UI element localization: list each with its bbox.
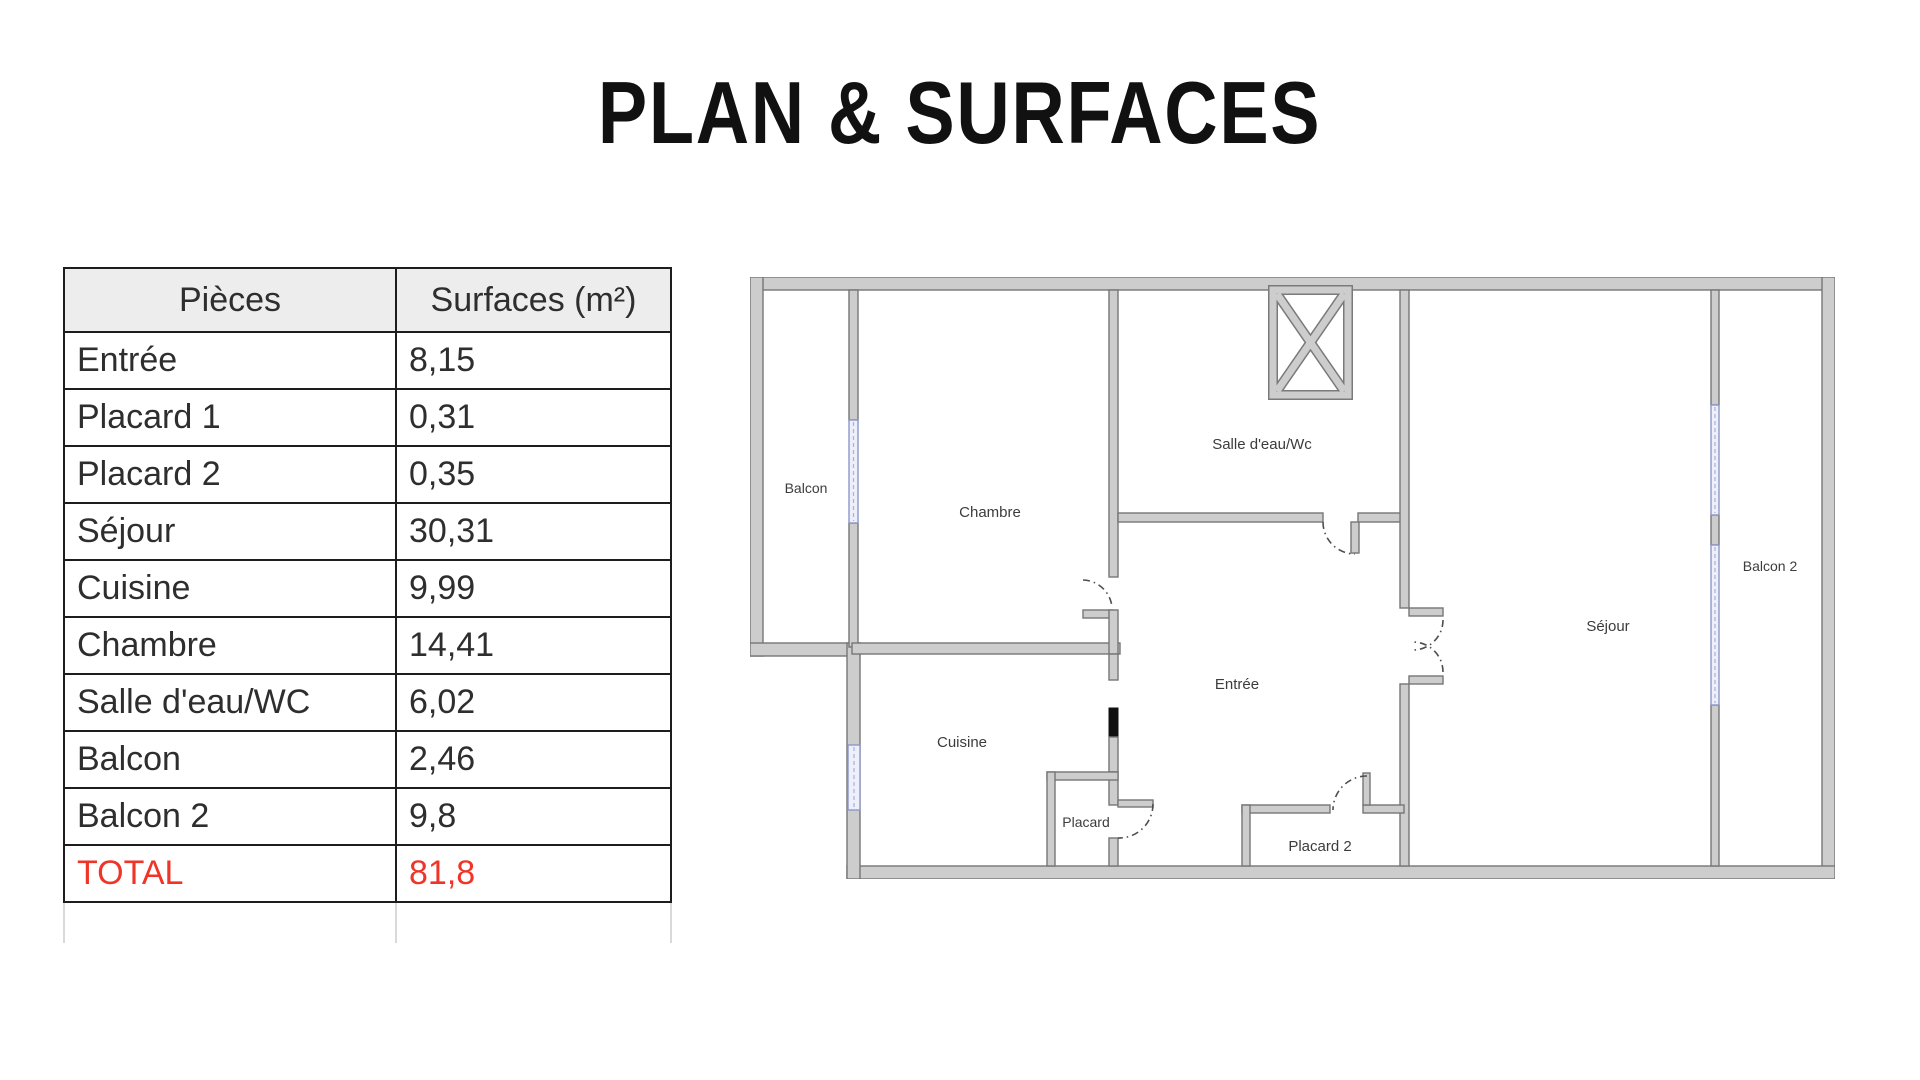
- table-row: Placard 2 0,35: [64, 446, 671, 503]
- cell-piece: Balcon 2: [64, 788, 396, 845]
- window-cuisine: [848, 745, 860, 810]
- table-row: Cuisine 9,99: [64, 560, 671, 617]
- page-title: PLAN & SURFACES: [0, 69, 1920, 157]
- door-arc-placard2: [1333, 776, 1367, 810]
- table-header-row: Pièces Surfaces (m²): [64, 268, 671, 332]
- label-balcon2: Balcon 2: [1743, 558, 1798, 574]
- table-row: Balcon 2 9,8: [64, 788, 671, 845]
- cell-piece: Placard 2: [64, 446, 396, 503]
- table-row: Chambre 14,41: [64, 617, 671, 674]
- cell-surface: 2,46: [396, 731, 671, 788]
- cell-piece: Entrée: [64, 332, 396, 389]
- cell-total-value: 81,8: [396, 845, 671, 902]
- label-sejour: Séjour: [1586, 618, 1629, 635]
- door-arc-chambre: [1083, 580, 1112, 607]
- label-cuisine: Cuisine: [937, 734, 987, 751]
- window-balcon-chambre: [849, 420, 858, 523]
- table-row: Entrée 8,15: [64, 332, 671, 389]
- table-row: Balcon 2,46: [64, 731, 671, 788]
- table-row: Salle d'eau/WC 6,02: [64, 674, 671, 731]
- window-sejour-upper: [1711, 405, 1719, 515]
- shaft-icon: [1273, 290, 1348, 395]
- table-ghost-row-line: [63, 903, 65, 943]
- cell-surface: 6,02: [396, 674, 671, 731]
- door-arc-salle-eau: [1323, 522, 1355, 554]
- table-ghost-row-line: [670, 903, 672, 943]
- cell-surface: 30,31: [396, 503, 671, 560]
- page: PLAN & SURFACES Pièces Surfaces (m²) Ent…: [0, 0, 1920, 1080]
- label-salle-eau: Salle d'eau/Wc: [1212, 436, 1312, 453]
- door-arc-sejour-top: [1413, 620, 1443, 650]
- cell-surface: 0,31: [396, 389, 671, 446]
- cell-surface: 0,35: [396, 446, 671, 503]
- table-row-total: TOTAL 81,8: [64, 845, 671, 902]
- page-title-text: PLAN & SURFACES: [598, 69, 1321, 157]
- table-ghost-row-line: [395, 903, 397, 943]
- cell-piece: Séjour: [64, 503, 396, 560]
- label-chambre: Chambre: [959, 504, 1021, 521]
- table-row: Placard 1 0,31: [64, 389, 671, 446]
- cell-piece: Salle d'eau/WC: [64, 674, 396, 731]
- label-balcon: Balcon: [785, 480, 828, 496]
- cell-surface: 14,41: [396, 617, 671, 674]
- label-placard: Placard: [1062, 814, 1109, 830]
- wall-post-black: [1109, 708, 1118, 737]
- cell-piece: Cuisine: [64, 560, 396, 617]
- door-arc-sejour-bottom: [1413, 642, 1443, 672]
- surfaces-table: Pièces Surfaces (m²) Entrée 8,15 Placard…: [63, 267, 672, 903]
- label-placard2: Placard 2: [1288, 838, 1351, 855]
- doors: [1083, 522, 1443, 838]
- cell-surface: 8,15: [396, 332, 671, 389]
- door-arc-placard: [1118, 804, 1153, 838]
- cell-piece: Placard 1: [64, 389, 396, 446]
- cell-total-label: TOTAL: [64, 845, 396, 902]
- cell-piece: Balcon: [64, 731, 396, 788]
- cell-surface: 9,99: [396, 560, 671, 617]
- header-surfaces: Surfaces (m²): [396, 268, 671, 332]
- cell-surface: 9,8: [396, 788, 671, 845]
- floor-plan: Balcon Chambre Salle d'eau/Wc Entrée Cui…: [750, 277, 1835, 879]
- table-row: Séjour 30,31: [64, 503, 671, 560]
- label-entree: Entrée: [1215, 676, 1259, 693]
- surfaces-table-wrapper: Pièces Surfaces (m²) Entrée 8,15 Placard…: [63, 267, 672, 903]
- header-pieces: Pièces: [64, 268, 396, 332]
- window-sejour-lower: [1711, 545, 1719, 705]
- cell-piece: Chambre: [64, 617, 396, 674]
